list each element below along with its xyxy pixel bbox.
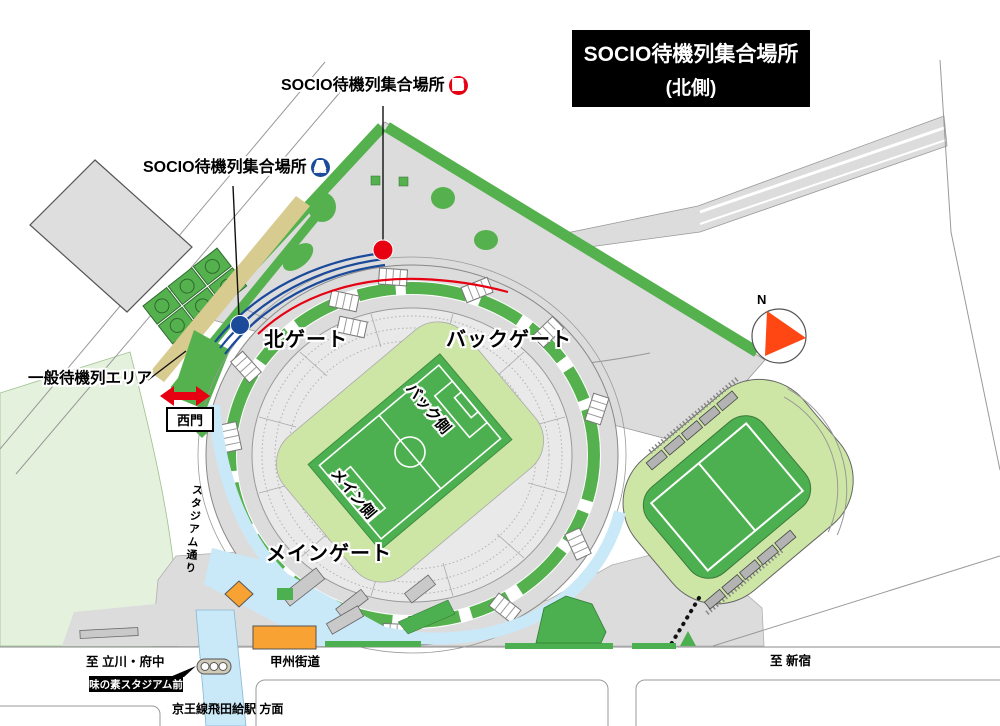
bus-stop-dot-1 — [201, 663, 209, 671]
park-area-west — [0, 352, 178, 646]
city-block-1 — [0, 706, 160, 726]
roadside-green-1 — [325, 641, 421, 647]
socio-b-badge: B — [449, 76, 468, 95]
title-line1: SOCIO待機列集合場所 — [584, 38, 799, 68]
city-block-3 — [636, 680, 1000, 726]
roadside-green-2 — [505, 643, 613, 649]
west-gate-label: 西門 — [166, 407, 214, 432]
bus-stop-label: 味の素スタジアム前 — [89, 676, 183, 692]
socio-a-badge: A — [311, 158, 330, 177]
plaza-green-patch-3 — [474, 230, 498, 250]
plaza-green-square-1 — [371, 176, 380, 185]
northeast-road-stripe-2 — [700, 140, 946, 224]
title-line2: (北側) — [666, 73, 717, 100]
bus-stop-dot-2 — [210, 663, 218, 671]
northeast-road-band — [552, 116, 947, 252]
plaza-green-patch-2 — [431, 187, 455, 209]
east-vertical-road — [940, 60, 1000, 470]
back-gate-label: バックゲート — [446, 329, 572, 351]
north-gate-label: 北ゲート — [264, 329, 348, 351]
to-shinjuku-label: 至 新宿 — [770, 655, 811, 669]
stadium-map-svg — [0, 0, 1000, 726]
koshu-kaido-label: 甲州街道 — [270, 656, 320, 670]
socio-b-marker — [373, 240, 393, 260]
socio-b-label: SOCIO待機列集合場所B — [281, 76, 468, 95]
city-block-2 — [256, 680, 608, 726]
socio-a-label: SOCIO待機列集合場所A — [143, 158, 330, 177]
to-tachikawa-fuchu-label: 至 立川・府中 — [86, 656, 164, 670]
map-canvas: SOCIO待機列集合場所 (北側) SOCIO待機列集合場所B SOCIO待機列… — [0, 0, 1000, 726]
socio-b-text: SOCIO待機列集合場所 — [281, 77, 445, 95]
general-waiting-label: 一般待機列エリア — [28, 370, 152, 387]
northeast-road-stripe-1 — [700, 128, 944, 212]
compass-n-label: N — [757, 293, 766, 307]
socio-a-text: SOCIO待機列集合場所 — [143, 159, 307, 177]
to-tobitakyu-label: 京王線飛田給駅 方面 — [172, 703, 283, 716]
green-patch-south — [277, 588, 293, 600]
orange-building — [253, 626, 316, 649]
bus-stop-dot-3 — [219, 663, 227, 671]
plaza-green-square-2 — [399, 177, 408, 186]
socio-a-marker — [231, 316, 250, 335]
title-box: SOCIO待機列集合場所 (北側) — [572, 30, 810, 107]
roadside-green-3 — [632, 643, 676, 649]
main-gate-label: メインゲート — [266, 543, 392, 565]
